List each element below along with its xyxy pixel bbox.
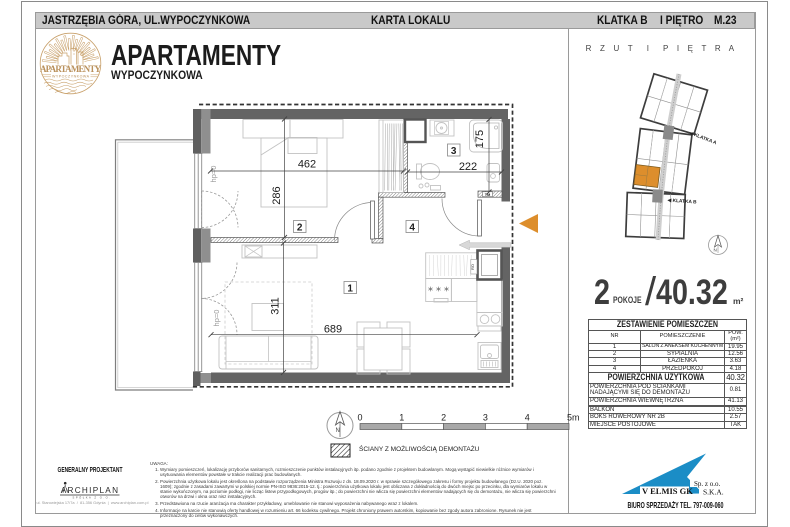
svg-text:3: 3 xyxy=(483,413,488,423)
svg-text:ARCHIPLAN: ARCHIPLAN xyxy=(61,486,120,495)
svg-text:5m: 5m xyxy=(567,413,580,423)
svg-text:APARTAMENTY: APARTAMENTY xyxy=(40,64,102,74)
svg-text:286: 286 xyxy=(271,186,283,204)
svg-text:V ELMIS GK: V ELMIS GK xyxy=(642,486,693,496)
svg-text:hp=0: hp=0 xyxy=(212,310,221,327)
svg-text:2: 2 xyxy=(441,413,446,423)
svg-text:4: 4 xyxy=(525,413,530,423)
svg-text:3: 3 xyxy=(451,146,457,157)
svg-text:689: 689 xyxy=(324,324,342,336)
svg-text:hp=0: hp=0 xyxy=(209,166,218,183)
svg-text:222: 222 xyxy=(459,161,477,173)
svg-text:S.K.A.: S.K.A. xyxy=(703,488,724,497)
svg-text:4: 4 xyxy=(409,222,415,233)
svg-text:0: 0 xyxy=(357,413,362,423)
svg-text:1: 1 xyxy=(347,283,353,294)
svg-text:1: 1 xyxy=(399,413,404,423)
svg-text:311: 311 xyxy=(270,297,282,315)
svg-text:RO: RO xyxy=(470,264,475,270)
svg-text:462: 462 xyxy=(298,159,316,171)
svg-text:N: N xyxy=(714,248,717,253)
svg-text:N: N xyxy=(336,428,340,434)
svg-text:2: 2 xyxy=(297,222,303,233)
svg-text:WYPOCZYNKOWA: WYPOCZYNKOWA xyxy=(52,74,90,78)
svg-text:175: 175 xyxy=(474,130,486,148)
